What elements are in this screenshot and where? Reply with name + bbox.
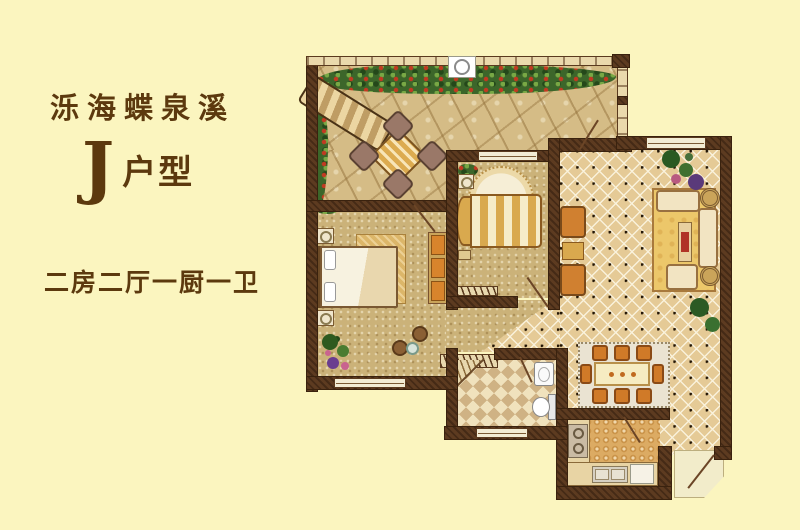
basin-bowl: [538, 367, 550, 382]
stove: [568, 424, 588, 458]
armchair: [560, 264, 586, 296]
single-bed: [470, 194, 542, 248]
wall-bathroom-kitchen-left: [556, 348, 568, 500]
armchair: [666, 264, 698, 290]
wardrobe-panel: [431, 235, 445, 255]
plant-cluster-living-bottom: [690, 298, 709, 317]
dining-chair: [652, 364, 664, 384]
bedroom2-window: [478, 151, 538, 161]
table-decor: [631, 372, 636, 377]
living-window-top: [646, 137, 706, 149]
sink-basin: [611, 469, 625, 480]
round-side-table: [700, 188, 720, 208]
pillow: [324, 250, 336, 270]
wardrobe-panel: [431, 281, 445, 301]
wash-basin: [534, 362, 554, 386]
table-decor: [609, 372, 614, 377]
master-window: [334, 378, 406, 388]
burner: [573, 428, 584, 439]
dining-chair: [614, 345, 630, 361]
nightstand: [316, 310, 334, 326]
patio-chair-west: [347, 139, 381, 173]
wall-entry-stub: [714, 446, 732, 460]
burner: [573, 443, 584, 454]
railing-post: [612, 54, 630, 68]
wall-mid-vertical: [446, 150, 458, 310]
dining-chair: [636, 388, 652, 404]
wall-bedroom2-right: [548, 138, 560, 310]
radiator-cabinet: [456, 286, 498, 296]
toilet-bowl: [532, 397, 550, 417]
table-runner: [681, 232, 689, 252]
wall-bedroom2-bottom: [446, 296, 518, 308]
wall-kitchen-bottom: [556, 486, 672, 500]
wall-right: [720, 136, 732, 458]
bathroom-window: [476, 428, 528, 438]
dining-chair: [636, 345, 652, 361]
small-round-table: [406, 342, 419, 355]
page: { "panel": { "project_name": "泺海蝶泉溪", "u…: [0, 0, 800, 530]
plant-cluster-living-top: [662, 150, 680, 168]
nightstand: [458, 174, 474, 189]
fridge: [630, 464, 654, 484]
sink-basin: [595, 469, 609, 480]
railing-post: [617, 96, 628, 105]
wall-left: [306, 62, 318, 392]
table-decor: [620, 372, 625, 377]
dining-chair: [592, 388, 608, 404]
dining-chair: [592, 345, 608, 361]
side-table: [562, 242, 584, 260]
dining-chair: [580, 364, 592, 384]
pillow: [324, 282, 336, 302]
patio-set: [350, 114, 446, 200]
coffee-table: [678, 222, 692, 262]
plant-cluster-master: [322, 334, 338, 350]
sofa: [698, 208, 718, 268]
wardrobe-panel: [431, 258, 445, 278]
dining-chair: [614, 388, 630, 404]
armchair: [560, 206, 586, 238]
patio-chair-east: [415, 139, 449, 173]
terrace-column: [448, 56, 476, 78]
toilet: [532, 392, 556, 422]
kitchen-sink: [592, 466, 628, 483]
wardrobe: [428, 232, 448, 304]
loveseat: [656, 190, 700, 212]
bedroom-bench: [458, 250, 471, 260]
round-side-table: [700, 266, 720, 286]
wall-kitchen-top: [556, 408, 670, 420]
floorplan: [0, 0, 800, 530]
ottoman: [412, 326, 428, 342]
dining-table: [594, 362, 650, 386]
nightstand: [316, 228, 334, 244]
wall-master-top: [306, 200, 458, 212]
